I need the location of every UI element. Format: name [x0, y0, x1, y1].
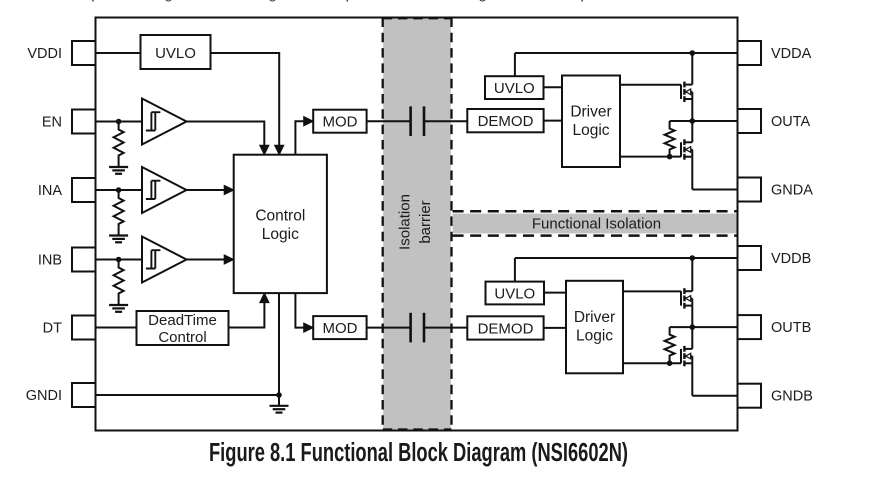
svg-text:VDDI: VDDI: [27, 46, 62, 62]
svg-text:Driver: Driver: [570, 104, 611, 121]
svg-text:GNDA: GNDA: [771, 183, 813, 199]
svg-text:DeadTime: DeadTime: [148, 312, 217, 329]
svg-text:INB: INB: [38, 253, 62, 269]
svg-text:Control: Control: [255, 207, 305, 224]
svg-text:Functional Isolation: Functional Isolation: [532, 216, 661, 233]
svg-text:Logic: Logic: [576, 328, 613, 345]
svg-text:barrier: barrier: [417, 200, 434, 243]
svg-text:GNDB: GNDB: [771, 389, 813, 405]
svg-text:Figure 8.1 Functional Block Di: Figure 8.1 Functional Block Diagram (NSI…: [209, 439, 628, 467]
svg-text:VDDA: VDDA: [771, 46, 812, 62]
svg-text:MOD: MOD: [323, 114, 358, 131]
svg-text:INA: INA: [38, 183, 63, 199]
svg-text:Driver: Driver: [574, 309, 615, 326]
svg-text:Logic: Logic: [572, 122, 609, 139]
svg-text:VDDB: VDDB: [771, 251, 811, 267]
svg-text:OUTA: OUTA: [771, 114, 811, 130]
svg-text:UVLO: UVLO: [494, 285, 535, 302]
svg-text:EN: EN: [42, 115, 62, 131]
svg-text:the input side logic, undervol: the input side logic, undervoltage locko…: [52, 0, 712, 2]
svg-text:Logic: Logic: [262, 226, 299, 243]
svg-text:Control: Control: [158, 329, 206, 346]
svg-text:UVLO: UVLO: [494, 80, 535, 97]
svg-text:Isolation: Isolation: [397, 194, 414, 250]
svg-text:MOD: MOD: [323, 320, 358, 337]
svg-text:DT: DT: [43, 321, 62, 337]
svg-text:UVLO: UVLO: [155, 45, 196, 62]
svg-text:DEMOD: DEMOD: [478, 320, 534, 337]
svg-text:DEMOD: DEMOD: [478, 113, 534, 130]
svg-text:OUTB: OUTB: [771, 320, 811, 336]
svg-text:GNDI: GNDI: [26, 388, 62, 404]
